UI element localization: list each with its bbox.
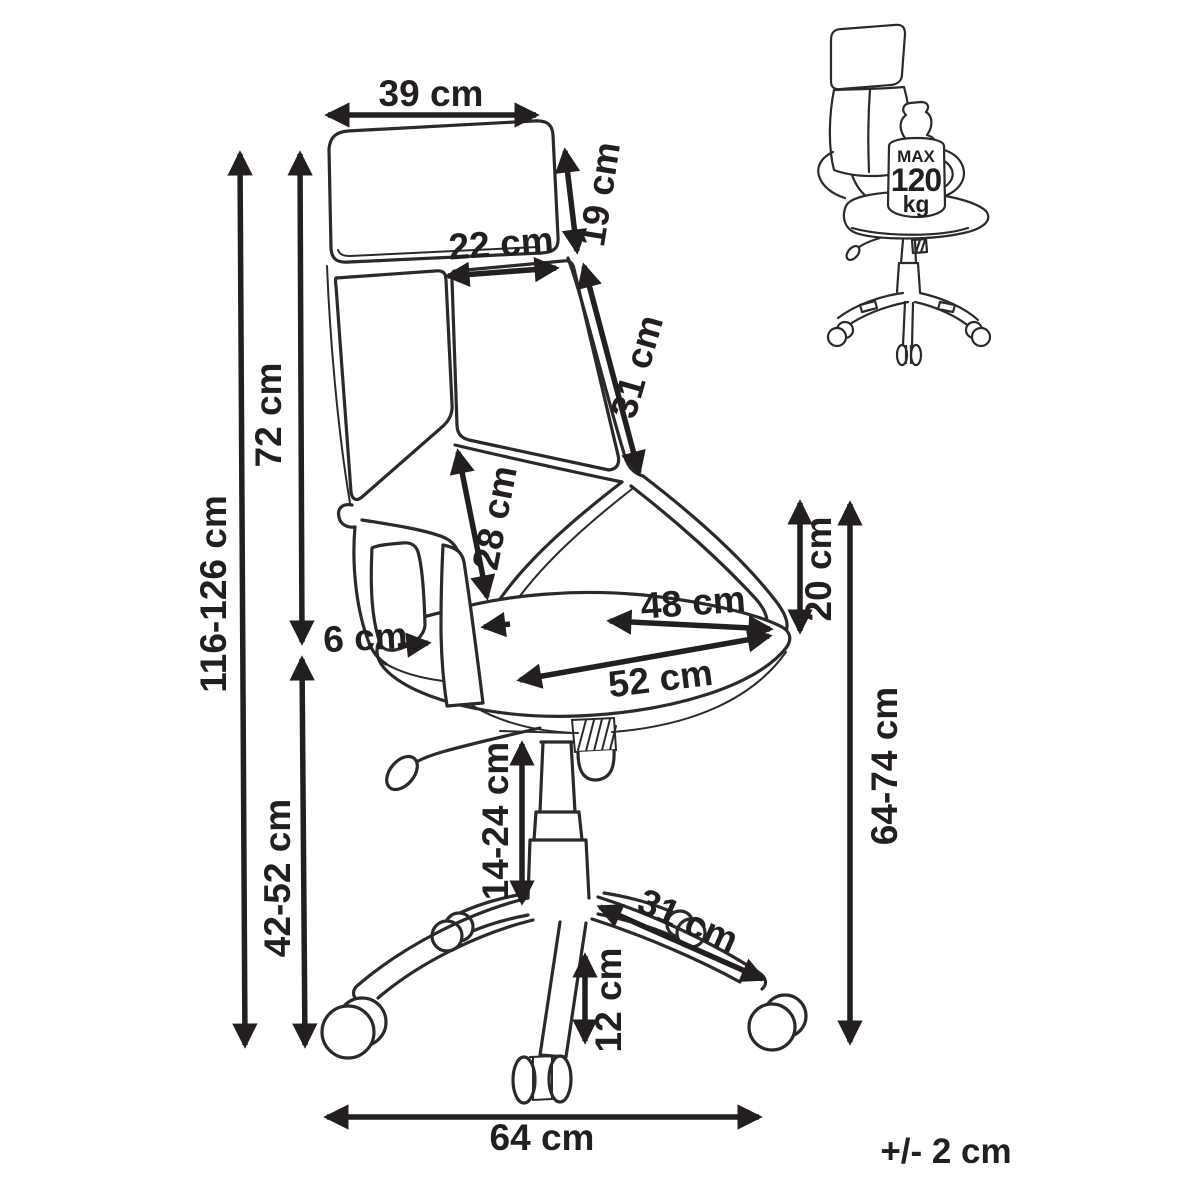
inset-chair-drawing: MAX 120 kg [818, 25, 990, 365]
dim-arrow-total-height [240, 154, 245, 1045]
dim-arrow-armrest-width-right [484, 624, 510, 627]
tolerance-note: +/- 2 cm [880, 1132, 1011, 1171]
dim-label-total-height: 116-126 cm [193, 495, 234, 693]
dim-label-armrest-above-seat: 20 cm [798, 517, 839, 622]
dim-label-armrest-width: 6 cm [322, 615, 408, 660]
max-load-line3: kg [903, 191, 930, 217]
inset-gas-lift [844, 238, 927, 292]
dim-label-seat-height: 42-52 cm [257, 799, 298, 957]
chair-dimension-diagram: MAX 120 kg 39 cm 116-126 cm 72 cm 42-52 … [0, 0, 1200, 1200]
diagram-canvas: MAX 120 kg 39 cm 116-126 cm 72 cm 42-52 … [0, 0, 1200, 1200]
dim-label-gas-lift-height: 14-24 cm [475, 742, 516, 900]
dim-label-caster-height: 12 cm [588, 948, 629, 1053]
dim-label-base-width: 64 cm [490, 1117, 595, 1158]
dim-label-upper-panel-width: 22 cm [447, 219, 555, 267]
dim-label-headrest-height: 19 cm [571, 139, 628, 249]
inset-headrest [831, 25, 905, 89]
dim-arrow-seat-height [302, 659, 305, 1045]
dim-arrow-backrest-height [300, 154, 302, 642]
dim-label-backrest-top-width: 39 cm [379, 73, 484, 114]
dim-label-backrest-height: 72 cm [248, 363, 289, 468]
dim-label-lumbar-seam: 28 cm [465, 462, 525, 573]
dim-label-seat-width: 48 cm [639, 578, 747, 626]
inset-base [828, 293, 990, 365]
dim-label-floor-to-armrest: 64-74 cm [864, 687, 905, 845]
